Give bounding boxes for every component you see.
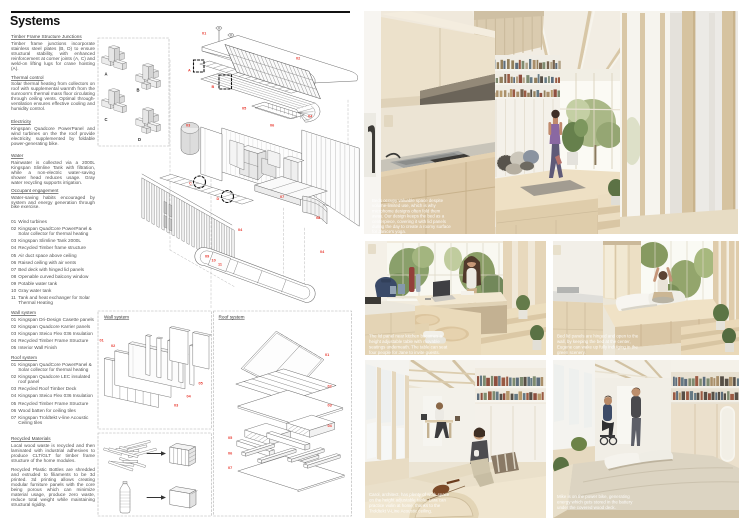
svg-text:07: 07	[280, 195, 284, 199]
svg-text:11: 11	[218, 263, 222, 267]
svg-text:on the height adjustable table: on the height adjustable table. Lara can	[369, 498, 446, 503]
svg-text:03: 03	[328, 404, 332, 408]
svg-text:02: 02	[296, 57, 300, 61]
svg-text:B: B	[212, 85, 215, 89]
svg-text:Carol, architect, has plenty o: Carol, architect, has plenty of work spa…	[369, 492, 450, 497]
svg-text:A: A	[188, 69, 191, 73]
svg-text:04: 04	[187, 395, 192, 399]
svg-text:C: C	[105, 117, 108, 122]
svg-text:Troldtekt V-Line Acoustic ceil: Troldtekt V-Line Acoustic ceiling.	[369, 509, 432, 514]
svg-text:08: 08	[316, 216, 320, 220]
svg-text:seatings underneath. The table: seatings underneath. The table can seat	[369, 345, 448, 350]
svg-text:Roof system: Roof system	[219, 315, 245, 320]
svg-text:D: D	[138, 137, 141, 142]
svg-text:Bed lid panels are hinged and: Bed lid panels are hinged and open to th…	[557, 334, 639, 339]
svg-text:C: C	[189, 182, 192, 186]
svg-text:for Janice's yoga.: for Janice's yoga.	[372, 229, 406, 234]
svg-text:under the covered wood deck.: under the covered wood deck.	[557, 505, 616, 510]
svg-text:02: 02	[111, 344, 115, 348]
svg-text:green scenery.: green scenery.	[557, 350, 586, 355]
svg-text:D: D	[217, 197, 220, 201]
svg-text:height adjustable table with m: height adjustable table with movable	[369, 339, 440, 344]
svg-text:wall, by keeping the bed at th: wall, by keeping the bed at the center,	[557, 339, 631, 344]
svg-text:energy which gets stored in th: energy which gets stored in the battery	[557, 500, 633, 505]
svg-text:05: 05	[242, 107, 246, 111]
svg-text:01: 01	[100, 339, 104, 343]
svg-text:The lid panel near kitchen bec: The lid panel near kitchen becomes a	[369, 334, 443, 339]
svg-text:Wall system: Wall system	[104, 315, 129, 320]
svg-text:practice violin at home, thank: practice violin at home, thanks to the	[369, 503, 441, 508]
svg-text:Mike is on the power bike, gen: Mike is on the power bike, generating	[557, 494, 630, 499]
svg-text:04: 04	[238, 228, 243, 232]
svg-text:06: 06	[228, 452, 232, 456]
svg-text:05: 05	[199, 382, 203, 386]
svg-text:03: 03	[186, 124, 190, 128]
svg-text:Eugene can wake up fully indul: Eugene can wake up fully indulging in th…	[557, 345, 638, 350]
svg-text:01: 01	[325, 353, 329, 357]
svg-text:B: B	[137, 88, 140, 93]
svg-text:A: A	[105, 72, 108, 77]
svg-text:03: 03	[174, 404, 178, 408]
svg-text:01: 01	[202, 32, 206, 36]
svg-text:04: 04	[320, 250, 325, 254]
svg-text:09: 09	[205, 255, 209, 259]
svg-text:02: 02	[328, 385, 332, 389]
svg-text:07: 07	[228, 466, 232, 470]
svg-text:06: 06	[270, 124, 274, 128]
svg-text:10: 10	[212, 259, 216, 263]
svg-text:05: 05	[228, 436, 232, 440]
svg-text:four people for Jane to invite: four people for Jane to invite guests.	[369, 350, 440, 355]
